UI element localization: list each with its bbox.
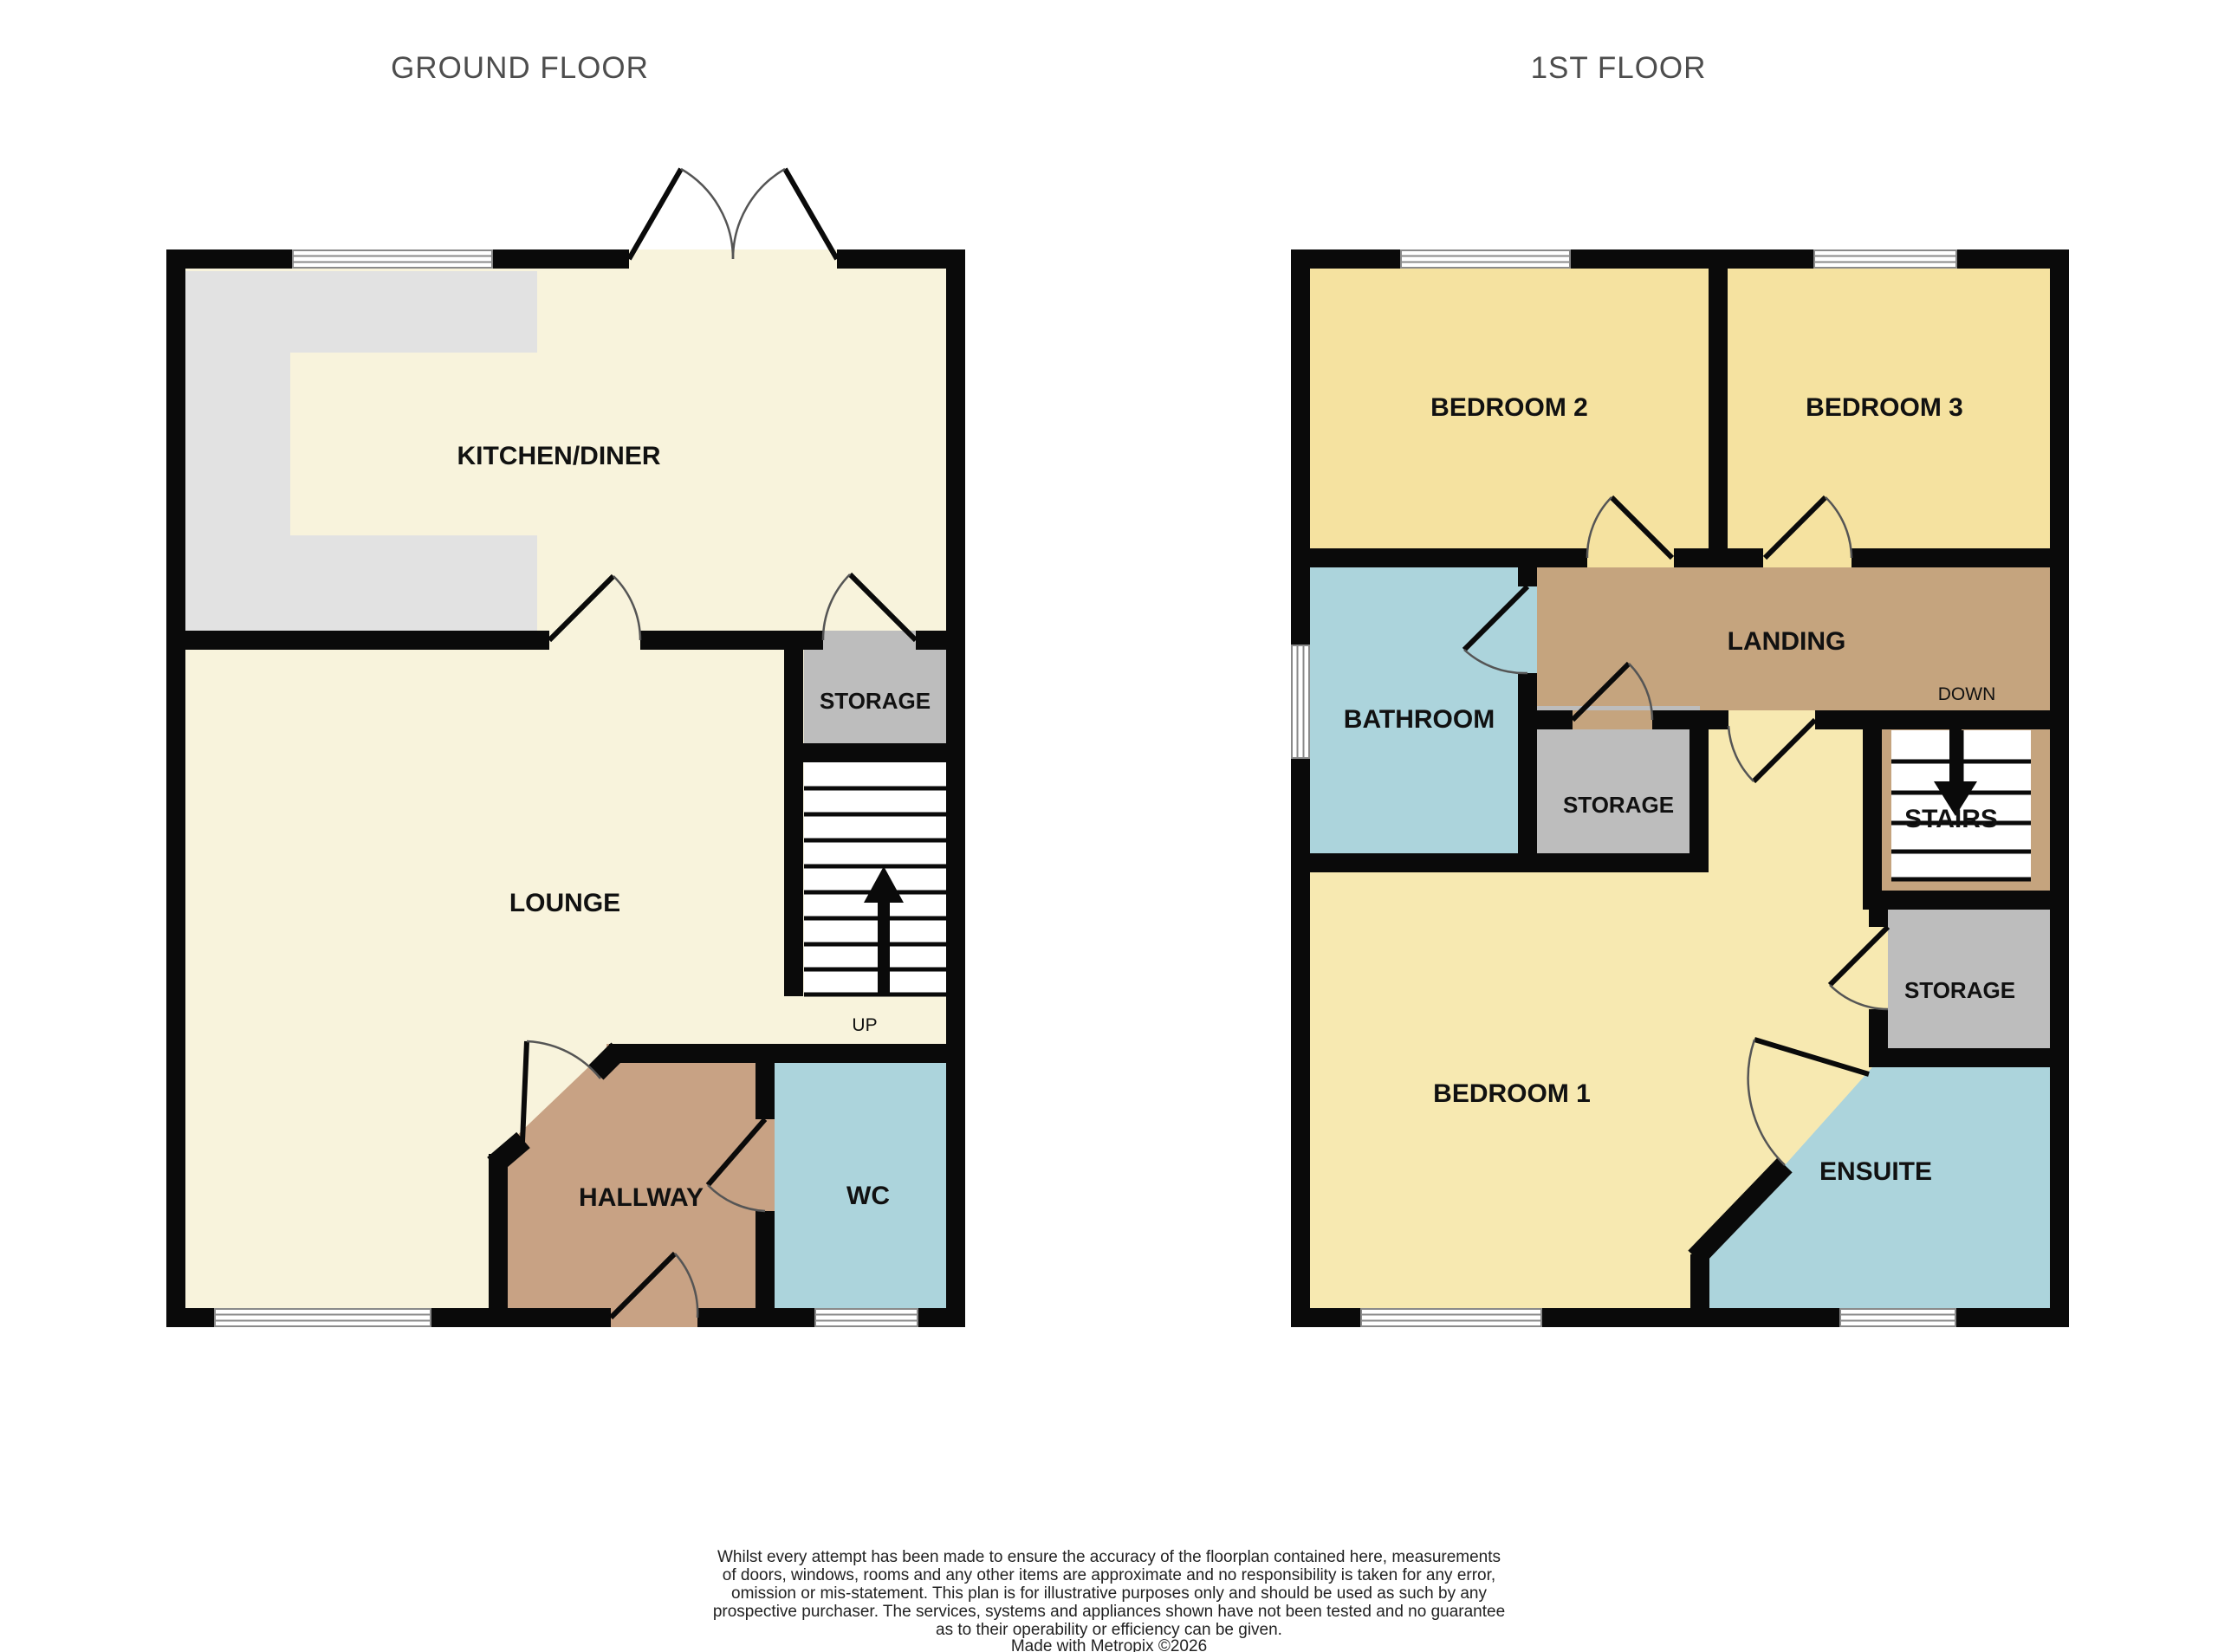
first-floor-title: 1ST FLOOR [1531, 51, 1707, 85]
storage-ground-label: STORAGE [820, 688, 931, 714]
stairs-ground [804, 762, 946, 994]
window-ensuite-bottom [1840, 1309, 1955, 1326]
ensuite-label: ENSUITE [1819, 1157, 1932, 1186]
disclaimer-line: as to their operability or efficiency ca… [936, 1621, 1282, 1639]
made-with-metropix-credit: Made with Metropix ©2026 [1011, 1637, 1207, 1652]
disclaimer-line: omission or mis-statement. This plan is … [731, 1584, 1487, 1603]
landing-label: LANDING [1728, 627, 1846, 656]
lounge-label: LOUNGE [509, 889, 620, 917]
disclaimer-line: of doors, windows, rooms and any other i… [723, 1566, 1495, 1584]
door-french-doors-kitchen [629, 169, 837, 259]
bedroom2-label: BEDROOM 2 [1430, 393, 1588, 422]
floorplan-canvas: GROUND FLOOR 1ST FLOOR [0, 0, 2218, 1652]
window-bedroom3-top [1814, 250, 1956, 268]
window-bathroom-left [1292, 645, 1309, 758]
bedroom1-label: BEDROOM 1 [1433, 1079, 1591, 1108]
first-floor-plan: BEDROOM 2 BEDROOM 3 BATHROOM LANDING DOW… [1291, 249, 2069, 1327]
stairs-down-arrow-shaft [1949, 728, 1962, 781]
window-kitchen-top [293, 250, 492, 268]
stairs-ground-treads [804, 762, 946, 994]
bathroom-label: BATHROOM [1344, 705, 1495, 734]
disclaimer-line: prospective purchaser. The services, sys… [713, 1603, 1505, 1621]
kitchen-diner-label: KITCHEN/DINER [457, 442, 660, 470]
room-wc-floor [756, 1044, 946, 1310]
hallway-label: HALLWAY [579, 1183, 704, 1212]
room-storage-mid-floor [1518, 706, 1700, 863]
disclaimer: Whilst every attempt has been made to en… [713, 1548, 1505, 1652]
window-wc-bottom [815, 1309, 918, 1326]
wc-label: WC [846, 1182, 890, 1210]
disclaimer-line: Whilst every attempt has been made to en… [717, 1548, 1501, 1566]
stairs-up-arrow-shaft [878, 903, 890, 994]
stairs-first [1891, 728, 2031, 879]
window-bedroom2-top [1401, 250, 1570, 268]
window-bedroom1-bottom [1361, 1309, 1541, 1326]
bedroom3-label: BEDROOM 3 [1806, 393, 1963, 422]
storage-mid-label: STORAGE [1563, 792, 1674, 818]
stairs-label: STAIRS [1904, 805, 1998, 833]
floorplan-page: { "titles": { "ground": "GROUND FLOOR", … [0, 0, 2218, 1652]
stairs-up-label: UP [852, 1015, 877, 1035]
ground-floor-plan: KITCHEN/DINER STORAGE LOUNGE UP HALLWAY … [166, 169, 965, 1327]
ground-floor-title: GROUND FLOOR [391, 51, 649, 85]
stairs-down-label: DOWN [1938, 684, 1996, 704]
window-lounge-bottom [215, 1309, 431, 1326]
storage-right-label: STORAGE [1904, 977, 2015, 1003]
